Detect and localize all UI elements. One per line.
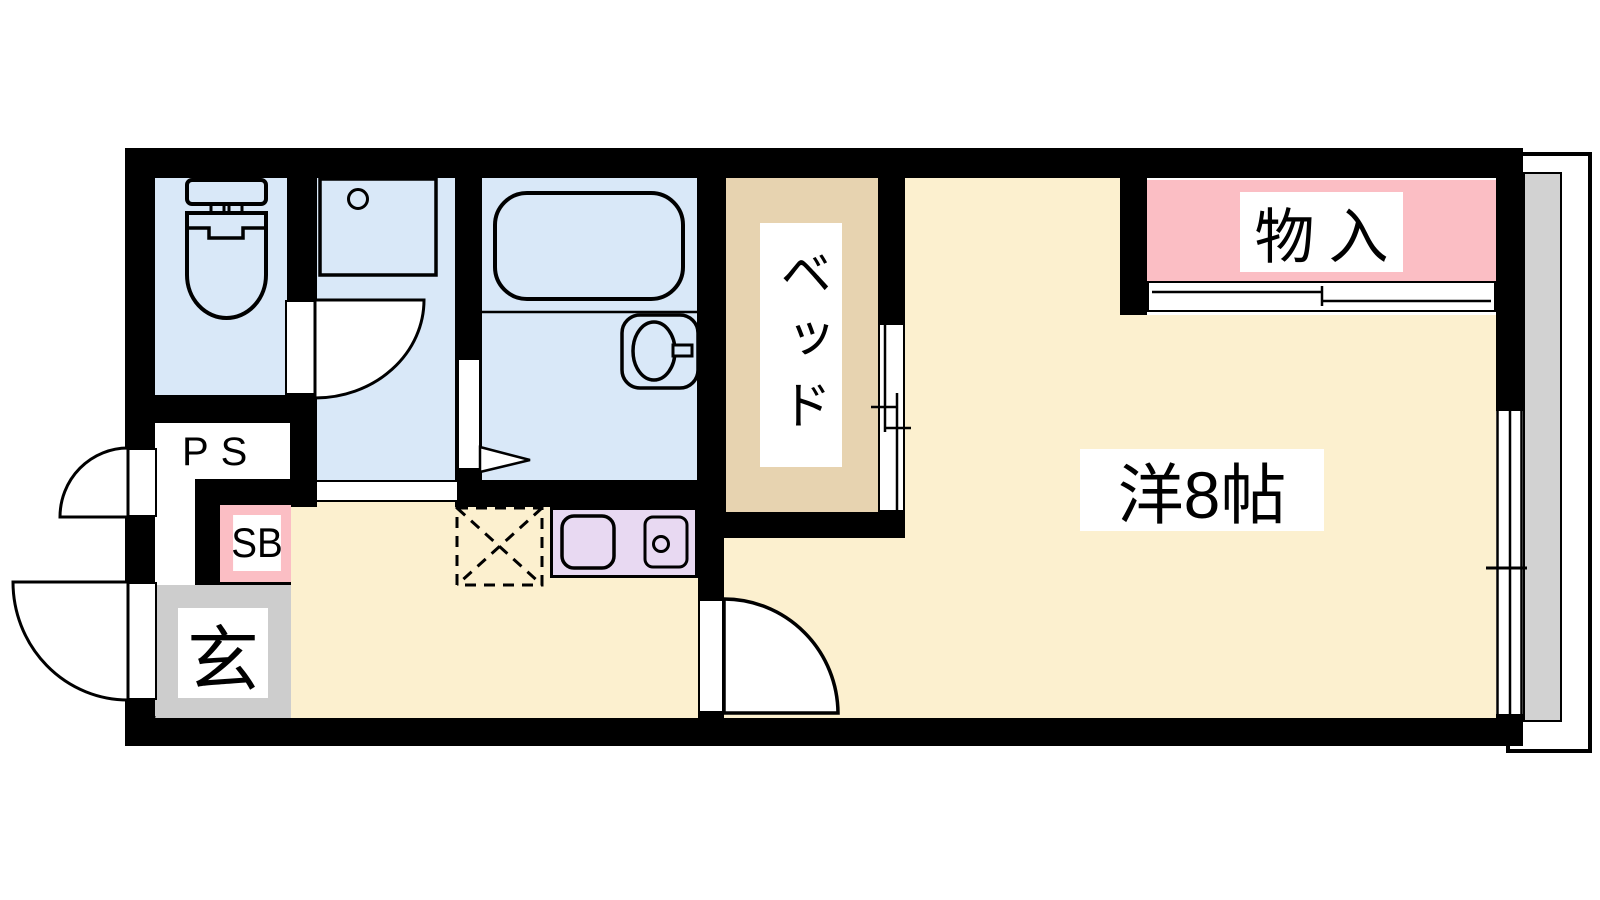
wall-bed-bottom [697, 512, 905, 538]
wall-closet-left [1120, 178, 1147, 315]
kitchen-counter [550, 507, 698, 578]
entrance-upper-door-swing-icon [60, 448, 128, 517]
wall-bed-right [878, 178, 905, 323]
closet-sliding-door [1147, 281, 1496, 312]
wall-bottom [125, 718, 1523, 746]
room-bathroom [482, 178, 697, 483]
main-room-a [905, 178, 1120, 718]
room-washroom [315, 178, 455, 480]
washroom-opening [317, 480, 457, 502]
bed-label: ベッド [760, 223, 842, 467]
main-room-c [724, 538, 905, 718]
window-right [1496, 411, 1523, 714]
room-toilet [155, 178, 287, 395]
kitchen-door-opening [698, 599, 724, 713]
entrance-upper-door-opening [123, 448, 157, 517]
closet-label: 物入 [1240, 192, 1403, 272]
wall-kitchen-stub [698, 713, 724, 719]
wall-top [125, 148, 1523, 178]
balcony-strip [1523, 172, 1562, 722]
wall-toilet-bottom [125, 395, 317, 423]
wall-bath-bottom [455, 480, 698, 507]
toilet-door-opening [285, 300, 317, 395]
bed-opening [878, 323, 905, 512]
entrance-label: 玄 [178, 608, 268, 698]
wall-bath-bed [697, 178, 726, 512]
shoe-box-label: SB [233, 515, 281, 571]
entrance-door-swing-icon [13, 582, 128, 700]
wall-ps-column [290, 423, 317, 507]
entrance-door-opening [123, 582, 157, 700]
floor-plan: 洋8帖 物入 ベッド 玄 SB PS [0, 0, 1600, 900]
main-room-label: 洋8帖 [1080, 449, 1324, 531]
bath-door-opening [457, 358, 481, 470]
pipe-space-label: PS [182, 430, 259, 475]
